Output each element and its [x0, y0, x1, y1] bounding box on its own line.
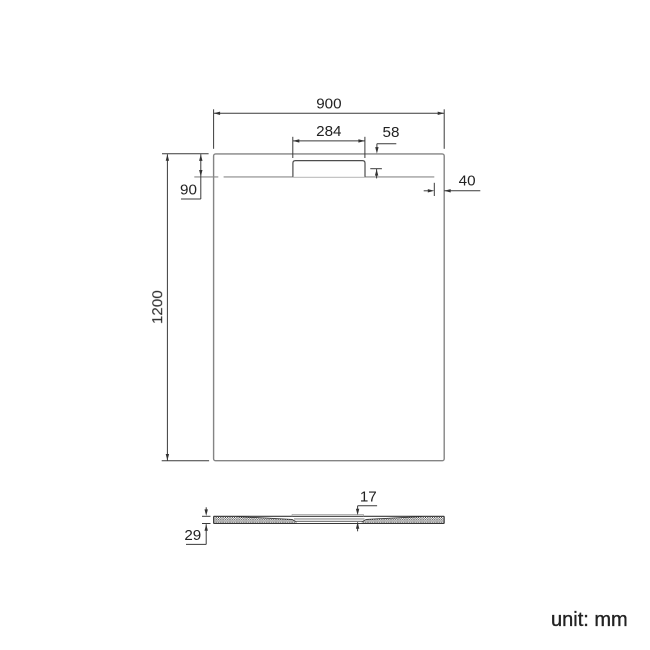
- svg-text:900: 900: [316, 96, 341, 113]
- svg-text:unit: mm: unit: mm: [551, 609, 628, 631]
- svg-text:17: 17: [360, 489, 377, 506]
- svg-text:90: 90: [180, 182, 197, 199]
- svg-text:29: 29: [184, 527, 201, 544]
- svg-text:58: 58: [383, 124, 400, 141]
- svg-text:1200: 1200: [149, 290, 166, 324]
- svg-text:284: 284: [316, 123, 341, 140]
- svg-text:40: 40: [459, 173, 476, 190]
